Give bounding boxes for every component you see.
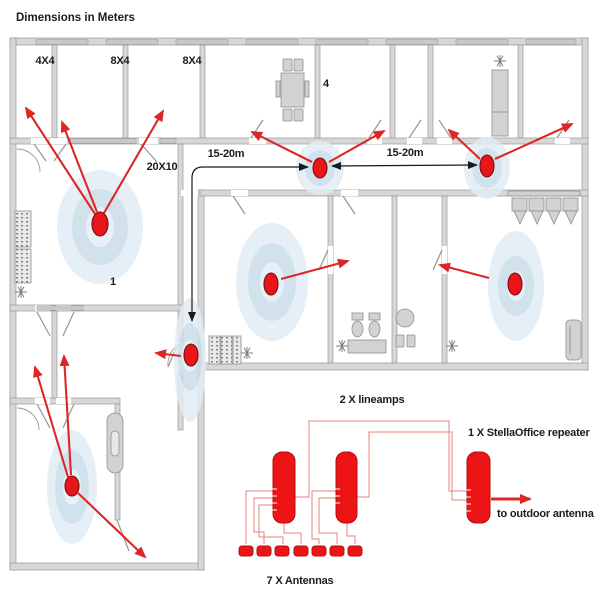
lineamp-1	[272, 452, 295, 523]
round-table-icon	[396, 309, 415, 347]
antenna-unit-1	[239, 546, 253, 556]
ceiling-antenna-7	[65, 476, 79, 496]
antenna-unit-7	[348, 546, 362, 556]
room-8x4b-label: 8X4	[183, 55, 203, 67]
lineamp-2	[335, 452, 357, 523]
page-title: Dimensions in Meters	[16, 12, 135, 24]
ceiling-antenna-4	[264, 273, 278, 295]
fridge-icon	[492, 70, 508, 136]
outdoor-antenna-label: to outdoor antenna	[497, 508, 595, 520]
antenna-unit-2	[257, 546, 271, 556]
antenna-unit-row	[239, 546, 362, 556]
snowflake-icon	[446, 340, 458, 352]
ceiling-antenna-1	[92, 212, 108, 236]
ceiling-antenna-3	[480, 155, 494, 177]
toilet-icon	[348, 313, 386, 353]
ceiling-antenna-5	[508, 273, 522, 295]
room-20x10-label: 20X10	[147, 161, 178, 173]
ceiling-antenna-6	[184, 344, 198, 366]
bookshelf-icon	[15, 211, 31, 283]
antenna-floorplan-diagram: Dimensions in Meters 4X4 8X4 8X4 4 20X10…	[0, 0, 600, 600]
snowflake-icon	[336, 340, 348, 352]
stellaoffice-repeater	[466, 452, 490, 523]
snowflake-icon	[241, 347, 253, 359]
antenna-unit-4	[294, 546, 308, 556]
zone-1-label: 1	[110, 276, 116, 288]
lineamps-label: 2 X lineamps	[340, 394, 405, 406]
snowflake-icon	[494, 55, 506, 67]
coat-rack-icon	[508, 191, 580, 224]
snowflake-icon	[15, 286, 27, 298]
distance-left-label: 15-20m	[208, 148, 245, 160]
repeater-label: 1 X StellaOffice repeater	[468, 427, 590, 439]
room-8x4a-label: 8X4	[111, 55, 131, 67]
antenna-unit-6	[330, 546, 344, 556]
bookshelf-icon	[209, 336, 241, 364]
ceiling-antenna-2	[313, 158, 327, 178]
antenna-unit-5	[312, 546, 326, 556]
antenna-unit-3	[275, 546, 289, 556]
room-4x4-label: 4X4	[36, 55, 56, 67]
room-4-label: 4	[323, 78, 330, 90]
conference-table-icon	[276, 59, 309, 121]
chair-icon	[566, 320, 581, 360]
antennas-count-label: 7 X Antennas	[267, 575, 334, 587]
cabinet-door-icon	[107, 413, 123, 473]
schematic	[239, 421, 530, 556]
distance-right-label: 15-20m	[387, 147, 424, 159]
